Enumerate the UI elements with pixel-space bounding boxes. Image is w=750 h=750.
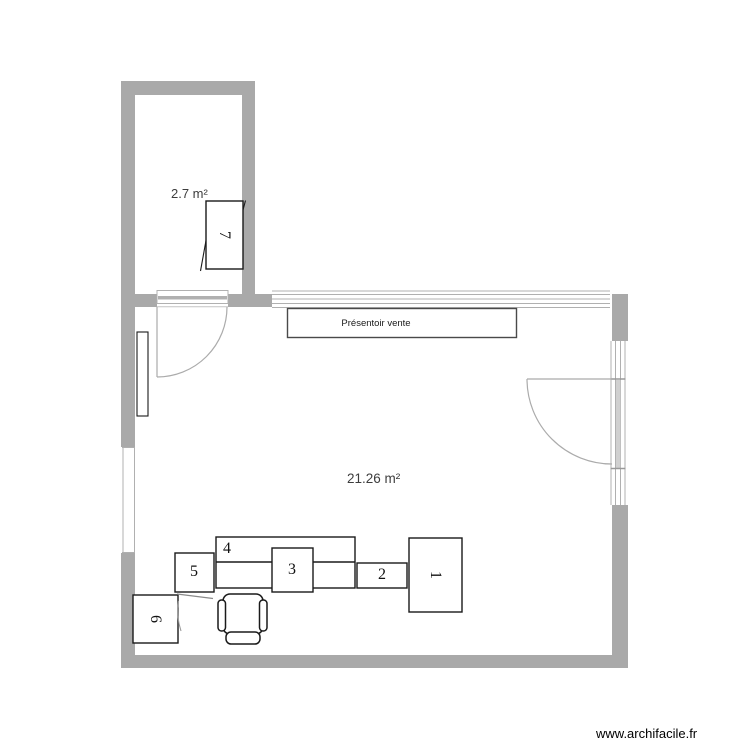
window-top[interactable] <box>272 291 610 308</box>
main-area-label: 21.26 m² <box>347 471 400 486</box>
opening-sash <box>158 296 227 300</box>
floor-plan-canvas: 2.7 m² 21.26 m² Présentoir vente 1 2 3 4… <box>0 0 750 750</box>
interior-opening[interactable] <box>157 291 228 307</box>
window-right-glazed[interactable] <box>611 341 626 505</box>
furniture-3-number: 3 <box>282 560 302 580</box>
furniture-2-number: 2 <box>372 565 392 585</box>
wall-top-segment-mid <box>228 294 272 307</box>
furniture-4-number: 4 <box>217 539 237 559</box>
furniture-1-number: 1 <box>425 565 445 585</box>
wall-right-upper <box>612 294 628 341</box>
furniture-6-number: 6 <box>145 609 165 629</box>
wall-top-segment-left <box>121 294 157 307</box>
door-annex-to-main[interactable] <box>157 307 227 377</box>
wall-left-upper <box>121 81 135 447</box>
wall-right-lower <box>612 505 628 668</box>
chair-backrest <box>226 632 260 644</box>
display-stand-label-text: Présentoir vente <box>341 318 410 329</box>
door-entrance-right[interactable] <box>527 379 612 464</box>
display-stand-label: Présentoir vente <box>287 308 517 338</box>
office-chair-icon[interactable] <box>218 594 267 644</box>
window-left[interactable] <box>122 447 135 553</box>
floor-plan-drawing <box>0 0 750 750</box>
cabinet-door-leaf <box>177 594 213 599</box>
door-swing-arc <box>527 379 612 464</box>
chair-seat <box>223 594 263 634</box>
archifacile-watermark: www.archifacile.fr <box>596 726 697 741</box>
cabinet-door[interactable] <box>177 594 213 631</box>
wall-annex-top <box>121 81 255 95</box>
door-swing-arc <box>157 307 227 377</box>
wall-bottom <box>121 655 628 668</box>
furniture-7-ghost-edge <box>201 241 207 272</box>
french-door-panel <box>616 380 621 468</box>
furniture-7-number: 7 <box>214 225 234 245</box>
radiator[interactable] <box>137 332 148 416</box>
annex-area-label: 2.7 m² <box>171 186 208 201</box>
chair-armrest-left <box>218 600 226 631</box>
wall-annex-right <box>242 81 255 294</box>
chair-armrest-right <box>260 600 268 631</box>
furniture-5-number: 5 <box>184 562 204 582</box>
